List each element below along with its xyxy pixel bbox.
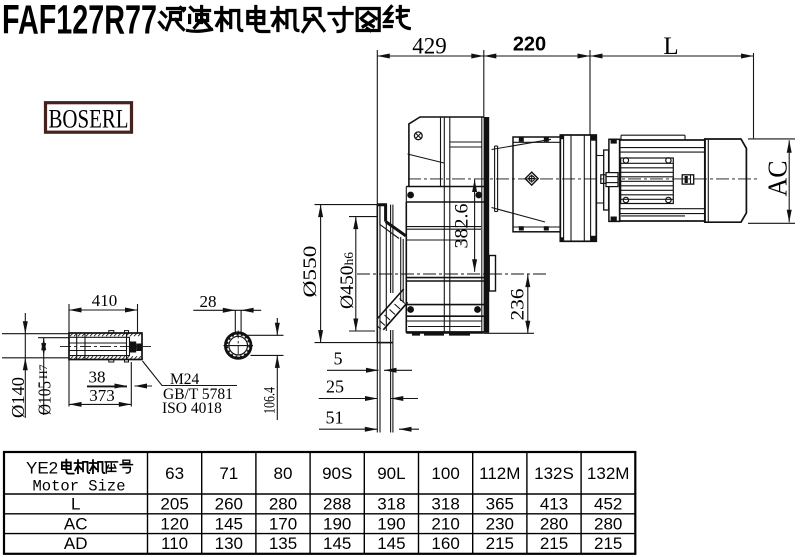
svg-text:135: 135 — [269, 534, 297, 553]
svg-text:28: 28 — [200, 292, 217, 311]
svg-text:236: 236 — [508, 289, 529, 321]
svg-text:ISO 4018: ISO 4018 — [162, 400, 222, 417]
svg-text:190: 190 — [377, 514, 405, 533]
svg-text:215: 215 — [486, 534, 514, 553]
svg-text:FAF127R77: FAF127R77 — [2, 0, 157, 43]
svg-text:L: L — [71, 495, 80, 514]
svg-text:429: 429 — [412, 34, 447, 59]
svg-text:Ø450h6: Ø450h6 — [337, 251, 358, 309]
svg-text:160: 160 — [431, 534, 459, 553]
svg-text:AC: AC — [763, 161, 793, 197]
svg-text:190: 190 — [323, 514, 351, 533]
svg-text:365: 365 — [486, 495, 514, 514]
svg-text:71: 71 — [219, 464, 238, 483]
svg-text:280: 280 — [594, 514, 622, 533]
svg-text:130: 130 — [215, 534, 243, 553]
svg-text:110: 110 — [161, 534, 188, 553]
svg-text:205: 205 — [160, 495, 188, 514]
svg-text:288: 288 — [323, 495, 351, 514]
svg-text:5: 5 — [334, 349, 343, 369]
svg-text:100: 100 — [431, 464, 459, 483]
svg-text:280: 280 — [269, 495, 297, 514]
svg-text:145: 145 — [377, 534, 405, 553]
svg-text:318: 318 — [431, 495, 459, 514]
svg-text:90L: 90L — [377, 464, 405, 483]
svg-text:260: 260 — [215, 495, 243, 514]
svg-text:210: 210 — [431, 514, 459, 533]
svg-text:63: 63 — [165, 464, 184, 483]
svg-text:452: 452 — [594, 495, 622, 514]
svg-text:215: 215 — [594, 534, 622, 553]
svg-text:51: 51 — [326, 408, 344, 428]
svg-text:132S: 132S — [534, 464, 574, 483]
svg-text:Motor Size: Motor Size — [33, 478, 126, 496]
svg-text:Ø550: Ø550 — [300, 246, 321, 298]
svg-text:413: 413 — [540, 495, 568, 514]
svg-text:Ø140: Ø140 — [8, 377, 28, 418]
svg-text:Ø105: Ø105 — [35, 381, 55, 415]
svg-text:410: 410 — [92, 291, 118, 310]
svg-text:AC: AC — [64, 514, 88, 533]
svg-text:H7: H7 — [36, 364, 50, 379]
svg-text:215: 215 — [540, 534, 568, 553]
svg-text:280: 280 — [540, 514, 568, 533]
svg-text:25: 25 — [326, 377, 344, 397]
svg-text:120: 120 — [160, 514, 188, 533]
svg-text:170: 170 — [269, 514, 297, 533]
svg-text:382.6: 382.6 — [452, 204, 473, 249]
svg-text:230: 230 — [486, 514, 514, 533]
svg-text:L: L — [663, 33, 678, 60]
svg-text:112M: 112M — [479, 464, 520, 483]
svg-text:80: 80 — [274, 464, 293, 483]
svg-text:220: 220 — [513, 34, 546, 56]
svg-text:373: 373 — [89, 386, 115, 405]
svg-text:132M: 132M — [587, 464, 630, 483]
svg-text:38: 38 — [89, 368, 106, 387]
svg-text:145: 145 — [215, 514, 243, 533]
svg-text:BOSERL: BOSERL — [49, 105, 129, 134]
svg-text:YE2: YE2 — [26, 459, 58, 478]
svg-text:145: 145 — [323, 534, 351, 553]
svg-text:318: 318 — [377, 495, 405, 514]
svg-text:106.4: 106.4 — [262, 387, 279, 414]
svg-text:AD: AD — [64, 534, 88, 553]
svg-text:90S: 90S — [322, 464, 352, 483]
